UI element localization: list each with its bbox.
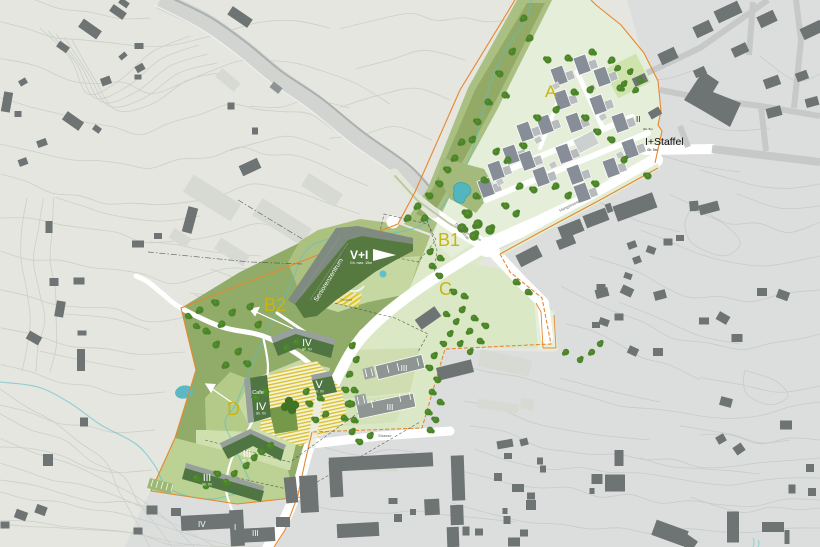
svg-text:III: III xyxy=(401,364,408,373)
svg-text:Gh. 7m: Gh. 7m xyxy=(202,483,213,487)
svg-text:Gh. 7m: Gh. 7m xyxy=(314,390,325,394)
svg-text:Terrasse: Terrasse xyxy=(340,298,352,302)
svg-text:V+I: V+I xyxy=(350,248,368,262)
svg-text:B1: B1 xyxy=(438,230,460,250)
svg-text:A: A xyxy=(545,82,557,101)
svg-text:Gh. 7m: Gh. 7m xyxy=(242,459,253,463)
svg-text:Gh. max. 15m: Gh. max. 15m xyxy=(350,261,372,265)
svg-text:Gh. 7m: Gh. 7m xyxy=(256,412,267,416)
svg-text:Gh. 5m: Gh. 5m xyxy=(647,148,658,152)
svg-text:II: II xyxy=(636,115,640,124)
svg-text:Gh. 5m: Gh. 5m xyxy=(643,127,653,131)
svg-text:D: D xyxy=(227,399,240,419)
svg-text:I: I xyxy=(234,523,236,532)
svg-text:I+Staffel: I+Staffel xyxy=(645,136,684,148)
svg-text:Gh. 7m: Gh. 7m xyxy=(302,348,313,352)
svg-text:III: III xyxy=(252,529,259,538)
svg-text:III: III xyxy=(387,403,394,412)
svg-text:Strasse: Strasse xyxy=(378,433,392,438)
svg-text:Cafe: Cafe xyxy=(252,390,264,396)
svg-text:C: C xyxy=(439,279,452,299)
svg-text:IV: IV xyxy=(198,520,206,529)
svg-text:B2: B2 xyxy=(264,295,286,315)
